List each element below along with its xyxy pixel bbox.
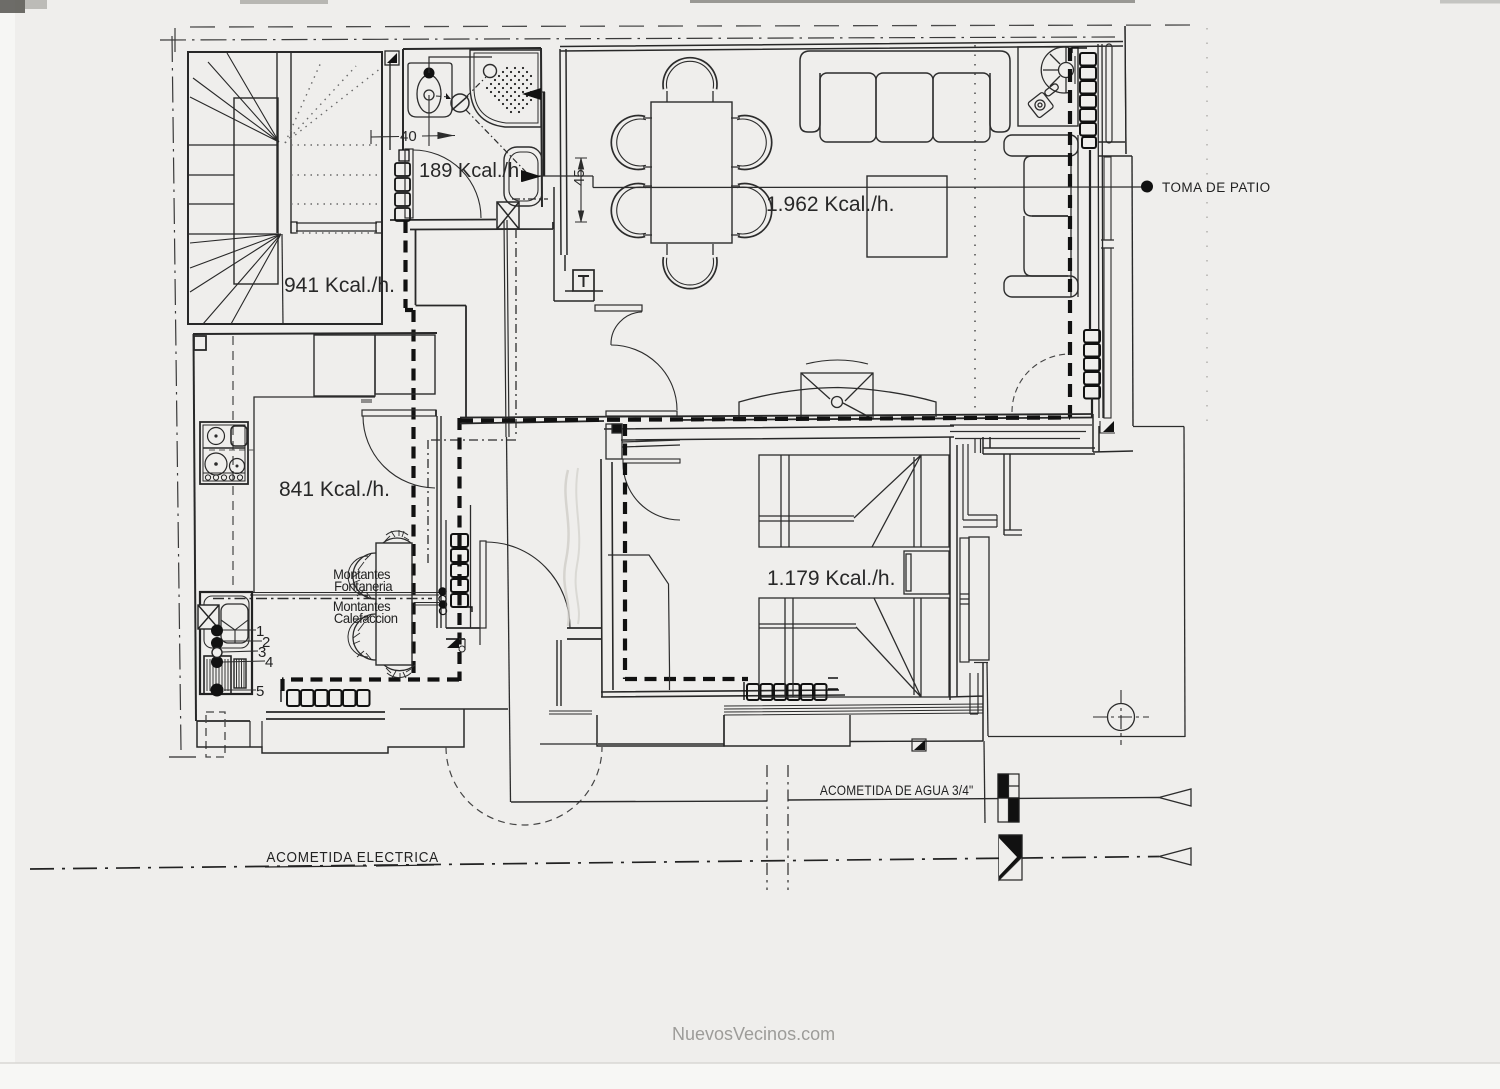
svg-text:NuevosVecinos.com: NuevosVecinos.com (672, 1024, 835, 1044)
svg-text:1.962 Kcal./h.: 1.962 Kcal./h. (766, 193, 894, 216)
svg-text:189 Kcal./h: 189 Kcal./h (419, 160, 519, 182)
svg-text:4: 4 (265, 654, 273, 671)
svg-text:45: 45 (571, 169, 588, 186)
svg-text:TOMA DE PATIO: TOMA DE PATIO (1162, 180, 1271, 195)
svg-text:841 Kcal./h.: 841 Kcal./h. (279, 478, 390, 501)
svg-text:40: 40 (400, 128, 417, 145)
svg-text:ACOMETIDA DE AGUA 3/4": ACOMETIDA DE AGUA 3/4" (820, 782, 974, 798)
svg-text:941 Kcal./h.: 941 Kcal./h. (284, 274, 395, 297)
svg-text:Fontaneria: Fontaneria (334, 579, 393, 594)
svg-text:ACOMETIDA ELECTRICA: ACOMETIDA ELECTRICA (266, 849, 438, 866)
svg-text:1.179 Kcal./h.: 1.179 Kcal./h. (767, 567, 895, 590)
svg-text:Calefaccion: Calefaccion (334, 611, 398, 626)
svg-text:5: 5 (256, 683, 264, 700)
